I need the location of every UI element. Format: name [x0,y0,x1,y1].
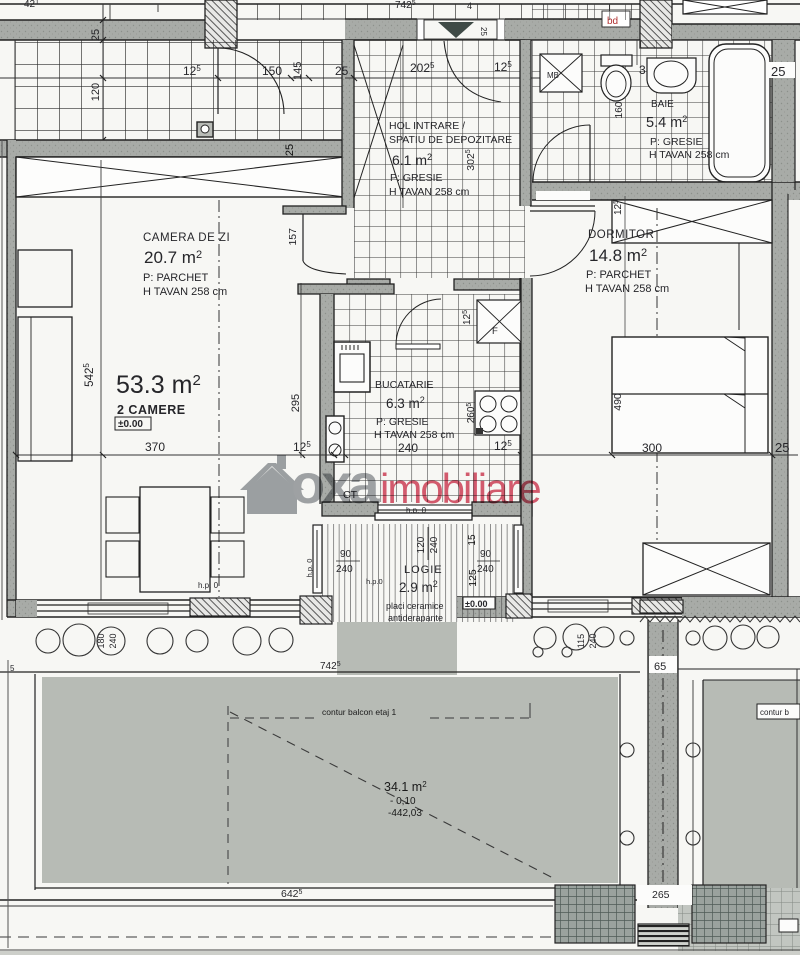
svg-text:6.3 m2: 6.3 m2 [386,395,425,411]
svg-text:490: 490 [612,393,624,411]
svg-text:-442,03: -442,03 [388,808,422,819]
svg-text:BAIE: BAIE [651,99,674,110]
svg-text:h.p.0: h.p.0 [366,577,383,586]
svg-text:imobiliare: imobiliare [380,465,540,512]
svg-text:h.p. 0: h.p. 0 [198,581,219,590]
svg-text:DORMITOR: DORMITOR [588,229,654,241]
svg-text:25: 25 [284,144,296,156]
svg-text:±0.00: ±0.00 [465,599,487,609]
svg-text:265: 265 [652,889,670,901]
svg-text:240: 240 [398,441,418,455]
svg-text:P: GRESIE: P: GRESIE [650,136,703,148]
svg-text:25: 25 [479,27,488,36]
svg-text:F: F [492,326,498,337]
svg-text:120: 120 [416,536,427,553]
svg-text:H TAVAN 258 cm: H TAVAN 258 cm [374,429,455,441]
svg-text:25: 25 [775,440,789,455]
svg-text:120: 120 [90,83,102,101]
svg-text:MB: MB [547,71,559,80]
svg-text:antiderapante: antiderapante [388,613,443,623]
svg-text:H TAVAN 258 cm: H TAVAN 258 cm [389,186,470,198]
svg-text:115: 115 [576,634,586,648]
svg-text:14.8 m2: 14.8 m2 [589,246,647,265]
svg-text:90: 90 [480,549,492,560]
svg-text:BUCATARIE: BUCATARIE [375,379,434,391]
svg-text:240: 240 [477,564,494,575]
svg-text:160: 160 [614,101,625,118]
svg-text:90: 90 [340,549,352,560]
svg-text:157: 157 [287,228,299,246]
svg-text:H TAVAN 258 cm: H TAVAN 258 cm [143,286,227,298]
svg-text:240: 240 [336,564,353,575]
svg-text:H TAVAN 258 cm: H TAVAN 258 cm [649,149,730,161]
svg-text:contur balcon etaj 1: contur balcon etaj 1 [322,707,396,717]
svg-text:295: 295 [290,394,302,412]
svg-text:P: GRESIE: P: GRESIE [390,172,443,184]
svg-text:15: 15 [467,534,478,546]
svg-text:370: 370 [145,440,165,454]
svg-text:180: 180 [96,633,106,648]
svg-text:oxa: oxa [291,452,380,515]
svg-text:125: 125 [467,569,479,587]
svg-text:25: 25 [90,29,102,41]
svg-text:LOGIE: LOGIE [404,564,443,576]
svg-text:25: 25 [771,64,785,79]
svg-text:240: 240 [588,633,598,648]
svg-text:- 0,10: - 0,10 [390,796,416,807]
svg-text:145: 145 [292,62,304,80]
svg-text:H TAVAN 258 cm: H TAVAN 258 cm [585,283,669,295]
svg-text:h.p. 0: h.p. 0 [305,559,314,578]
svg-text:placi ceramice: placi ceramice [386,601,444,611]
svg-text:25: 25 [335,64,349,78]
svg-text:SPATIU DE DEPOZITARE: SPATIU DE DEPOZITARE [389,134,512,146]
svg-text:6.1 m2: 6.1 m2 [392,152,432,168]
svg-text:300: 300 [642,441,662,455]
svg-text:240: 240 [429,536,440,553]
svg-text:65: 65 [654,661,666,673]
svg-text:2.9 m2: 2.9 m2 [399,579,438,595]
svg-text:5.4 m2: 5.4 m2 [646,114,687,131]
svg-text:3: 3 [639,63,646,77]
svg-text:53.3 m2: 53.3 m2 [116,371,201,399]
svg-text:±0.00: ±0.00 [118,419,143,430]
svg-text:P: PARCHET: P: PARCHET [586,269,651,281]
svg-text:CAMERA DE ZI: CAMERA DE ZI [143,232,230,244]
svg-text:P: GRESIE: P: GRESIE [376,416,429,428]
svg-text:contur b: contur b [760,708,789,717]
svg-text:240: 240 [108,633,118,648]
svg-text:P: PARCHET: P: PARCHET [143,272,208,284]
svg-text:5: 5 [10,664,15,673]
svg-text:HOL INTRARE /: HOL INTRARE / [389,120,465,132]
svg-text:2 CAMERE: 2 CAMERE [117,403,186,417]
svg-text:20.7 m2: 20.7 m2 [144,248,202,267]
svg-text:34.1 m2: 34.1 m2 [384,780,427,794]
